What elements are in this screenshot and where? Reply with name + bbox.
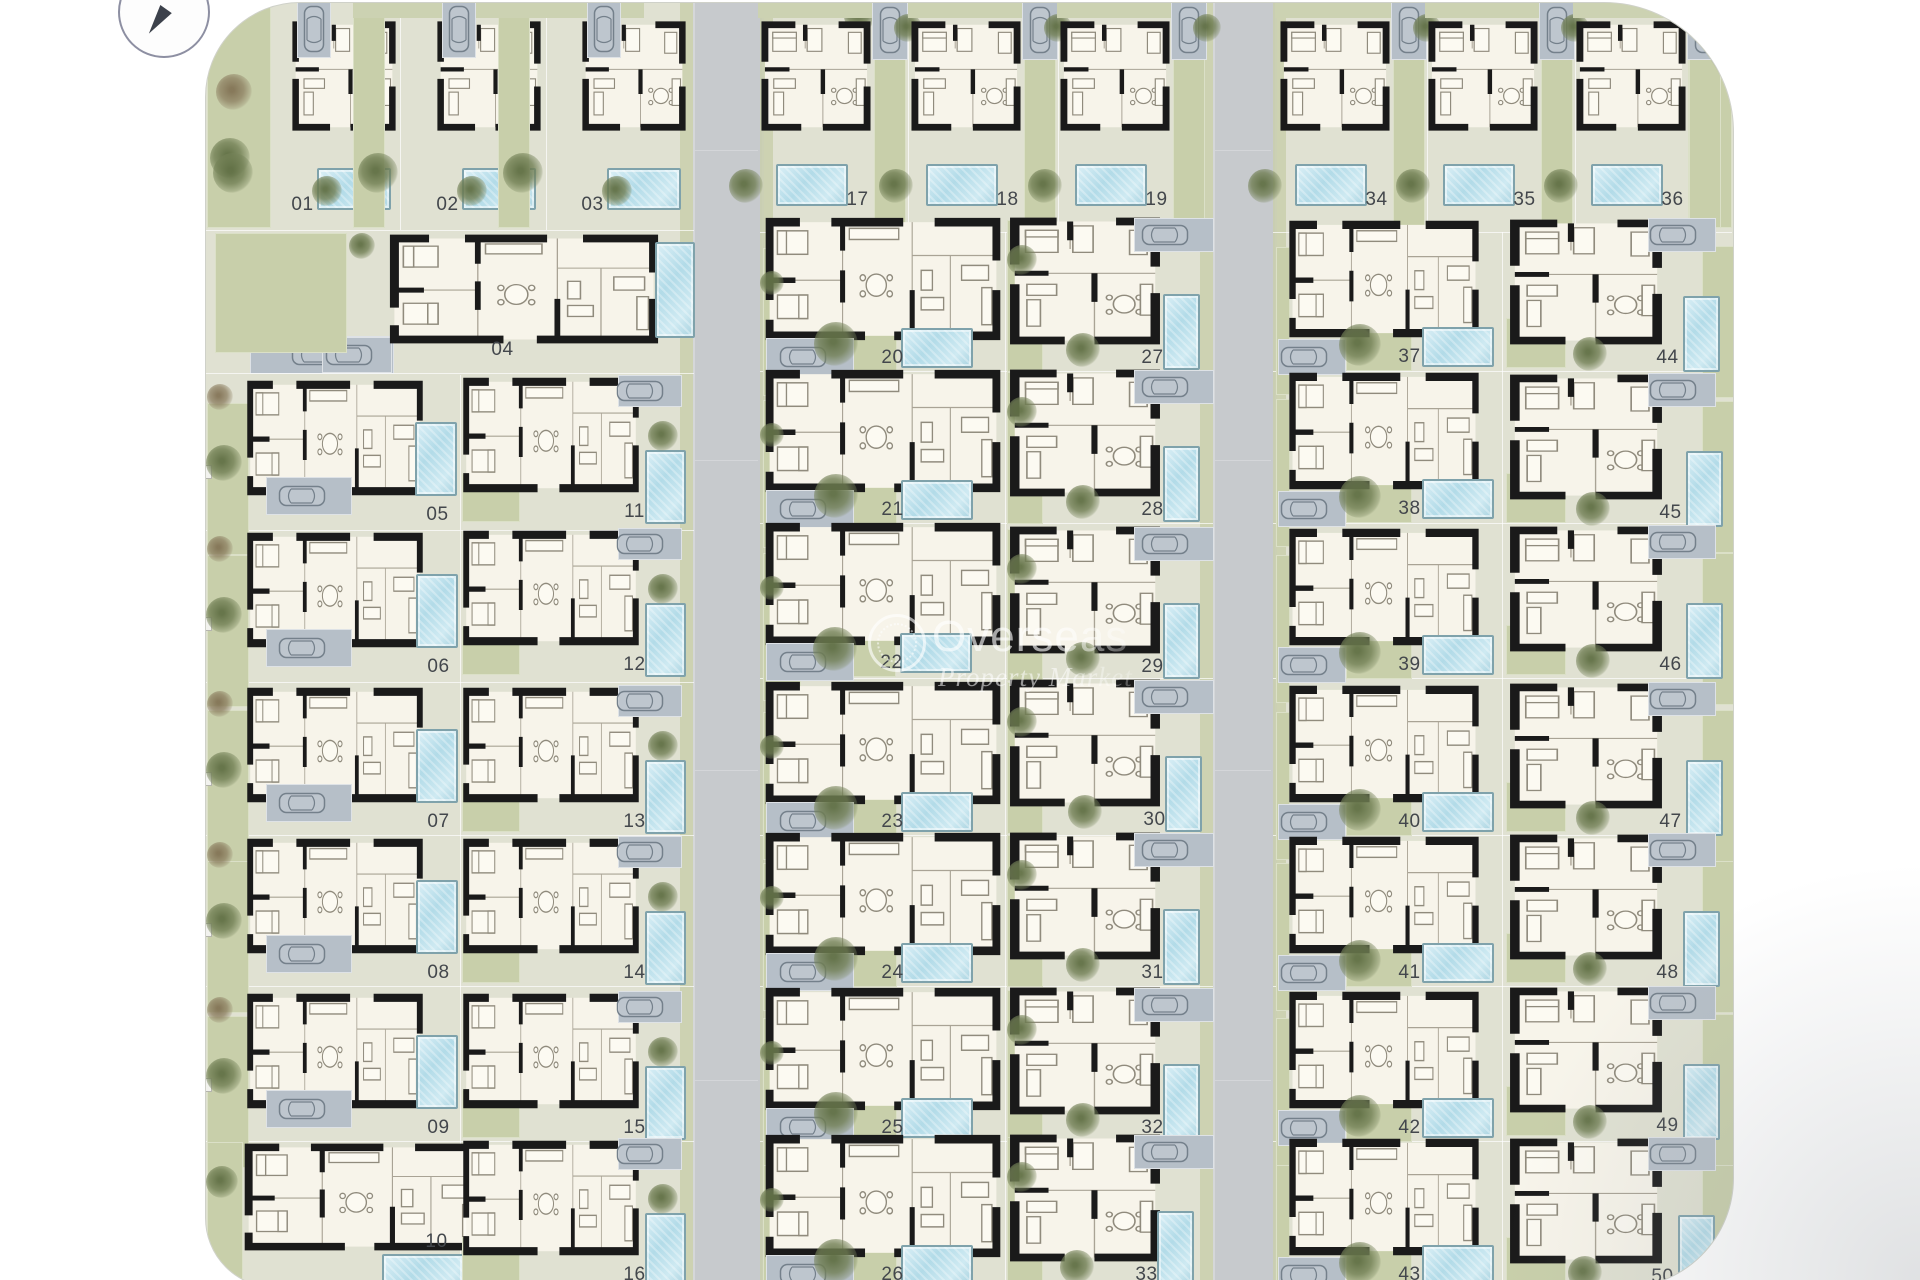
- garden-area: [207, 1142, 243, 1280]
- swimming-pool: [416, 1035, 458, 1109]
- compass-north-icon: [118, 0, 210, 58]
- garden-area: [215, 233, 347, 353]
- parking-pad: [297, 2, 331, 58]
- plot-number: 37: [1398, 346, 1420, 368]
- plot-number: 05: [426, 504, 448, 526]
- swimming-pool: [901, 480, 973, 520]
- villa-floorplan: [764, 1133, 1002, 1259]
- plot-number: 03: [581, 194, 603, 216]
- tree-icon: [814, 786, 858, 830]
- tree-icon: [206, 597, 242, 633]
- villa-floorplan: [462, 529, 640, 647]
- swimming-pool: [416, 729, 458, 803]
- tree-icon: [648, 1037, 678, 1067]
- tree-icon: [1576, 801, 1610, 835]
- plot-number: 24: [881, 962, 903, 984]
- tree-brown-icon: [216, 74, 252, 110]
- parking-pad: [1648, 373, 1716, 407]
- tree-icon: [602, 176, 632, 206]
- plot-number: 19: [1145, 189, 1167, 211]
- swimming-pool: [1165, 756, 1202, 832]
- swimming-pool: [416, 880, 458, 954]
- plot-number: 34: [1365, 189, 1387, 211]
- tree-brown-icon: [207, 842, 233, 868]
- plot-number: 38: [1398, 498, 1420, 520]
- tree-icon: [1339, 1095, 1381, 1137]
- villa-floorplan: [764, 216, 1002, 342]
- villa-floorplan: [1575, 20, 1687, 132]
- plot-number: 02: [436, 194, 458, 216]
- swimming-pool: [1163, 909, 1200, 985]
- plot-number: 26: [881, 1264, 903, 1280]
- parking-pad: [618, 836, 682, 868]
- swimming-pool: [645, 760, 686, 834]
- plot-number: 44: [1656, 347, 1678, 369]
- villa-floorplan: [1508, 218, 1664, 346]
- tree-icon: [1339, 789, 1381, 831]
- swimming-pool: [1157, 1211, 1194, 1280]
- parking-pad: [1278, 491, 1346, 527]
- swimming-pool: [901, 792, 973, 832]
- tree-icon: [760, 271, 784, 295]
- tree-brown-icon: [207, 691, 233, 717]
- parking-pad: [442, 2, 476, 58]
- tree-icon: [1066, 485, 1100, 519]
- tree-icon: [760, 735, 784, 759]
- plot-number: 47: [1659, 811, 1681, 833]
- swimming-pool: [901, 1098, 973, 1138]
- car-icon: [635, 378, 665, 404]
- swimming-pool: [1422, 327, 1494, 367]
- car-icon: [1666, 837, 1698, 863]
- page-corner-shading: [1500, 860, 1920, 1280]
- tree-icon: [1007, 1162, 1037, 1192]
- swimming-pool: [415, 422, 457, 496]
- villa-floorplan: [1288, 684, 1480, 804]
- parking-pad: [587, 2, 621, 58]
- tree-icon: [206, 752, 242, 788]
- tree-icon: [648, 421, 678, 451]
- swimming-pool: [1591, 164, 1663, 206]
- tree-icon: [648, 882, 678, 912]
- parking-pad: [1278, 647, 1346, 683]
- swimming-pool: [901, 328, 973, 368]
- car-icon: [291, 483, 327, 509]
- car-icon: [1295, 344, 1329, 370]
- parking-pad: [1134, 218, 1214, 252]
- plot-number: 41: [1398, 962, 1420, 984]
- tree-icon: [648, 731, 678, 761]
- villa-floorplan: [1508, 682, 1664, 810]
- swimming-pool: [655, 242, 695, 338]
- villa-floorplan: [462, 1139, 640, 1257]
- parking-pad: [618, 991, 682, 1023]
- car-icon: [291, 941, 327, 967]
- plot-number: 04: [491, 339, 513, 361]
- tree-icon: [760, 1188, 784, 1212]
- swimming-pool: [645, 603, 686, 677]
- plot-boundary-line: [1215, 770, 1271, 771]
- plot-number: 08: [427, 962, 449, 984]
- tree-brown-icon: [207, 536, 233, 562]
- swimming-pool: [1443, 164, 1515, 206]
- car-icon: [1158, 374, 1190, 400]
- villa-floorplan: [462, 837, 640, 955]
- car-icon: [635, 994, 665, 1020]
- villa-floorplan: [1288, 835, 1480, 955]
- tree-icon: [349, 233, 375, 259]
- swimming-pool: [901, 1245, 973, 1280]
- villa-floorplan: [1288, 371, 1480, 491]
- plot-number: 36: [1661, 189, 1683, 211]
- car-icon: [1295, 652, 1329, 678]
- plot-boundary-line: [546, 4, 548, 230]
- plot-boundary-line: [695, 150, 758, 151]
- villa-floorplan: [1508, 525, 1664, 653]
- parking-pad: [618, 1138, 682, 1170]
- plot-number: 13: [623, 811, 645, 833]
- plot-number: 35: [1513, 189, 1535, 211]
- sun-logo-icon: [868, 614, 926, 672]
- tree-icon: [206, 1058, 242, 1094]
- tree-icon: [760, 1041, 784, 1065]
- swimming-pool: [645, 1213, 686, 1280]
- tree-icon: [1066, 1103, 1100, 1137]
- parking-pad: [266, 477, 352, 515]
- car-icon: [591, 4, 617, 54]
- plot-number: 30: [1143, 809, 1165, 831]
- swimming-pool: [1422, 943, 1494, 983]
- parking-pad: [1278, 339, 1346, 375]
- tree-icon: [1576, 644, 1610, 678]
- villa-floorplan: [462, 992, 640, 1110]
- plot-number: 42: [1398, 1117, 1420, 1139]
- villa-floorplan: [1279, 20, 1391, 132]
- swimming-pool: [1422, 635, 1494, 675]
- swimming-pool: [1683, 296, 1720, 372]
- villa-floorplan: [760, 20, 872, 132]
- swimming-pool: [645, 911, 686, 985]
- swimming-pool: [901, 943, 973, 983]
- parking-pad: [618, 375, 682, 407]
- plot-number: 45: [1659, 502, 1681, 524]
- car-icon: [1295, 1262, 1329, 1280]
- tree-icon: [1028, 169, 1062, 203]
- plot-number: 33: [1135, 1264, 1157, 1280]
- car-icon: [1158, 1139, 1190, 1165]
- villa-floorplan: [462, 686, 640, 804]
- tree-icon: [814, 322, 858, 366]
- car-icon: [1666, 529, 1698, 555]
- plot-number: 09: [427, 1117, 449, 1139]
- car-icon: [1295, 496, 1329, 522]
- swimming-pool: [382, 1254, 464, 1280]
- swimming-pool: [1422, 1098, 1494, 1138]
- tree-icon: [1339, 476, 1381, 518]
- car-icon: [1666, 377, 1698, 403]
- villa-floorplan: [1288, 219, 1480, 339]
- car-icon: [1158, 837, 1190, 863]
- swimming-pool: [1163, 294, 1200, 370]
- swimming-pool: [1422, 479, 1494, 519]
- plot-number: 43: [1398, 1264, 1420, 1280]
- tree-icon: [1193, 14, 1221, 42]
- car-icon: [635, 1141, 665, 1167]
- tree-icon: [879, 169, 913, 203]
- swimming-pool: [1422, 1245, 1494, 1280]
- car-icon: [301, 4, 327, 54]
- swimming-pool: [645, 450, 686, 524]
- swimming-pool: [645, 1066, 686, 1140]
- plot-number: 21: [881, 499, 903, 521]
- swimming-pool: [1075, 164, 1147, 206]
- car-icon: [1295, 809, 1329, 835]
- lawn-patch: [353, 2, 499, 18]
- tree-icon: [1339, 1242, 1381, 1280]
- car-icon: [1666, 686, 1698, 712]
- tree-icon: [1248, 169, 1282, 203]
- villa-floorplan: [1288, 1137, 1480, 1257]
- car-icon: [1158, 531, 1190, 557]
- plot-boundary-line: [695, 1080, 758, 1081]
- parking-pad: [1648, 525, 1716, 559]
- tree-brown-icon: [207, 384, 233, 410]
- car-icon: [1295, 960, 1329, 986]
- parking-pad: [266, 935, 352, 973]
- car-icon: [291, 635, 327, 661]
- swimming-pool: [776, 164, 848, 206]
- car-icon: [446, 4, 472, 54]
- swimming-pool: [1295, 164, 1367, 206]
- plot-number: 28: [1141, 499, 1163, 521]
- garden-area: [353, 4, 385, 228]
- watermark-brand: Overseas: [932, 612, 1128, 662]
- plot-number: 23: [881, 811, 903, 833]
- tree-icon: [1066, 948, 1100, 982]
- plot-number: 06: [427, 656, 449, 678]
- plot-number: 20: [881, 347, 903, 369]
- parking-pad: [618, 685, 682, 717]
- villa-floorplan: [764, 831, 1002, 957]
- villa-floorplan: [1059, 20, 1171, 132]
- tree-icon: [813, 627, 857, 671]
- tree-icon: [1576, 492, 1610, 526]
- tree-icon: [457, 176, 487, 206]
- villa-floorplan: [1288, 990, 1480, 1110]
- tree-icon: [206, 445, 242, 481]
- tree-brown-icon: [207, 997, 233, 1023]
- tree-icon: [814, 474, 858, 518]
- car-icon: [1158, 992, 1190, 1018]
- lawn-patch: [498, 2, 644, 18]
- tree-icon: [1339, 940, 1381, 982]
- swimming-pool: [1686, 760, 1723, 836]
- car-icon: [1666, 222, 1698, 248]
- plot-number: 27: [1141, 347, 1163, 369]
- parking-pad: [1278, 955, 1346, 991]
- villa-floorplan: [764, 986, 1002, 1112]
- plot-boundary-line: [1215, 150, 1271, 151]
- plot-number: 39: [1398, 654, 1420, 676]
- tree-icon: [1007, 245, 1037, 275]
- parking-pad: [1134, 527, 1214, 561]
- car-icon: [635, 688, 665, 714]
- tree-icon: [1007, 397, 1037, 427]
- plot-boundary-line: [205, 230, 694, 232]
- tree-icon: [760, 423, 784, 447]
- tree-icon: [760, 886, 784, 910]
- plot-number: 17: [846, 189, 868, 211]
- plot-boundary-line: [695, 460, 758, 461]
- tree-icon: [814, 1092, 858, 1136]
- tree-icon: [1007, 860, 1037, 890]
- plot-boundary-line: [400, 4, 402, 230]
- swimming-pool: [1163, 446, 1200, 522]
- tree-icon: [814, 937, 858, 981]
- garden-area: [498, 4, 530, 228]
- villa-floorplan: [1427, 20, 1539, 132]
- site-plan-image: 01 02 03 04 05 06 07 08 09 10 11 12 13 1…: [0, 0, 1920, 1280]
- swimming-pool: [1163, 1064, 1200, 1140]
- parking-pad: [266, 1090, 352, 1128]
- tree-icon: [213, 153, 253, 193]
- garden-area: [207, 4, 271, 228]
- swimming-pool: [1422, 792, 1494, 832]
- plot-boundary-line: [1215, 460, 1271, 461]
- plot-number: 40: [1398, 811, 1420, 833]
- swimming-pool: [926, 164, 998, 206]
- swimming-pool: [416, 574, 458, 648]
- tree-icon: [358, 153, 398, 193]
- villa-floorplan: [462, 376, 640, 494]
- car-icon: [1158, 222, 1190, 248]
- parking-pad: [1134, 370, 1214, 404]
- plot-number: 14: [623, 962, 645, 984]
- tree-icon: [1007, 1015, 1037, 1045]
- villa-floorplan: [1288, 527, 1480, 647]
- tree-icon: [1007, 554, 1037, 584]
- tree-icon: [648, 1184, 678, 1214]
- car-icon: [291, 790, 327, 816]
- tree-icon: [206, 1166, 238, 1198]
- tree-icon: [1339, 324, 1381, 366]
- villa-floorplan: [1508, 373, 1664, 501]
- plot-number: 10: [425, 1231, 447, 1253]
- tree-icon: [814, 1239, 858, 1280]
- tree-icon: [1060, 1250, 1094, 1280]
- villa-floorplan: [764, 368, 1002, 494]
- plot-boundary-line: [205, 986, 694, 988]
- tree-icon: [206, 903, 242, 939]
- parking-pad: [1648, 682, 1716, 716]
- parking-pad: [618, 528, 682, 560]
- compass-needle-icon: [143, 5, 172, 38]
- tree-icon: [760, 576, 784, 600]
- plot-boundary-line: [205, 682, 694, 684]
- plot-number: 12: [623, 654, 645, 676]
- car-icon: [291, 1096, 327, 1122]
- tree-icon: [1066, 333, 1100, 367]
- swimming-pool: [1686, 603, 1723, 679]
- watermark: Overseas Property Market: [868, 598, 1208, 718]
- plot-number: 31: [1141, 962, 1163, 984]
- tree-icon: [1068, 795, 1102, 829]
- plot-number: 07: [427, 811, 449, 833]
- plot-number: 11: [624, 501, 645, 523]
- plot-number: 16: [623, 1264, 645, 1280]
- parking-pad: [1134, 1135, 1214, 1169]
- parking-pad: [266, 784, 352, 822]
- parking-pad: [1134, 833, 1214, 867]
- tree-icon: [648, 574, 678, 604]
- parking-pad: [1648, 218, 1716, 252]
- watermark-tagline: Property Market: [938, 662, 1133, 693]
- car-icon: [635, 839, 665, 865]
- swimming-pool: [1686, 451, 1723, 527]
- plot-number: 01: [291, 194, 313, 216]
- plot-boundary-line: [1215, 1080, 1271, 1081]
- tree-icon: [729, 169, 763, 203]
- villa-floorplan: [388, 233, 660, 345]
- tree-icon: [503, 153, 543, 193]
- tree-icon: [312, 176, 342, 206]
- parking-pad: [1134, 988, 1214, 1022]
- plot-number: 15: [623, 1117, 645, 1139]
- tree-icon: [1544, 169, 1578, 203]
- tree-icon: [1573, 337, 1607, 371]
- plot-boundary-line: [695, 770, 758, 771]
- plot-number: 46: [1659, 654, 1681, 676]
- parking-pad: [266, 629, 352, 667]
- tree-icon: [1709, 14, 1735, 42]
- tree-icon: [1396, 169, 1430, 203]
- villa-floorplan: [910, 20, 1022, 132]
- plot-number: 18: [996, 189, 1018, 211]
- car-icon: [635, 531, 665, 557]
- tree-icon: [1339, 632, 1381, 674]
- parking-pad: [1278, 1257, 1346, 1280]
